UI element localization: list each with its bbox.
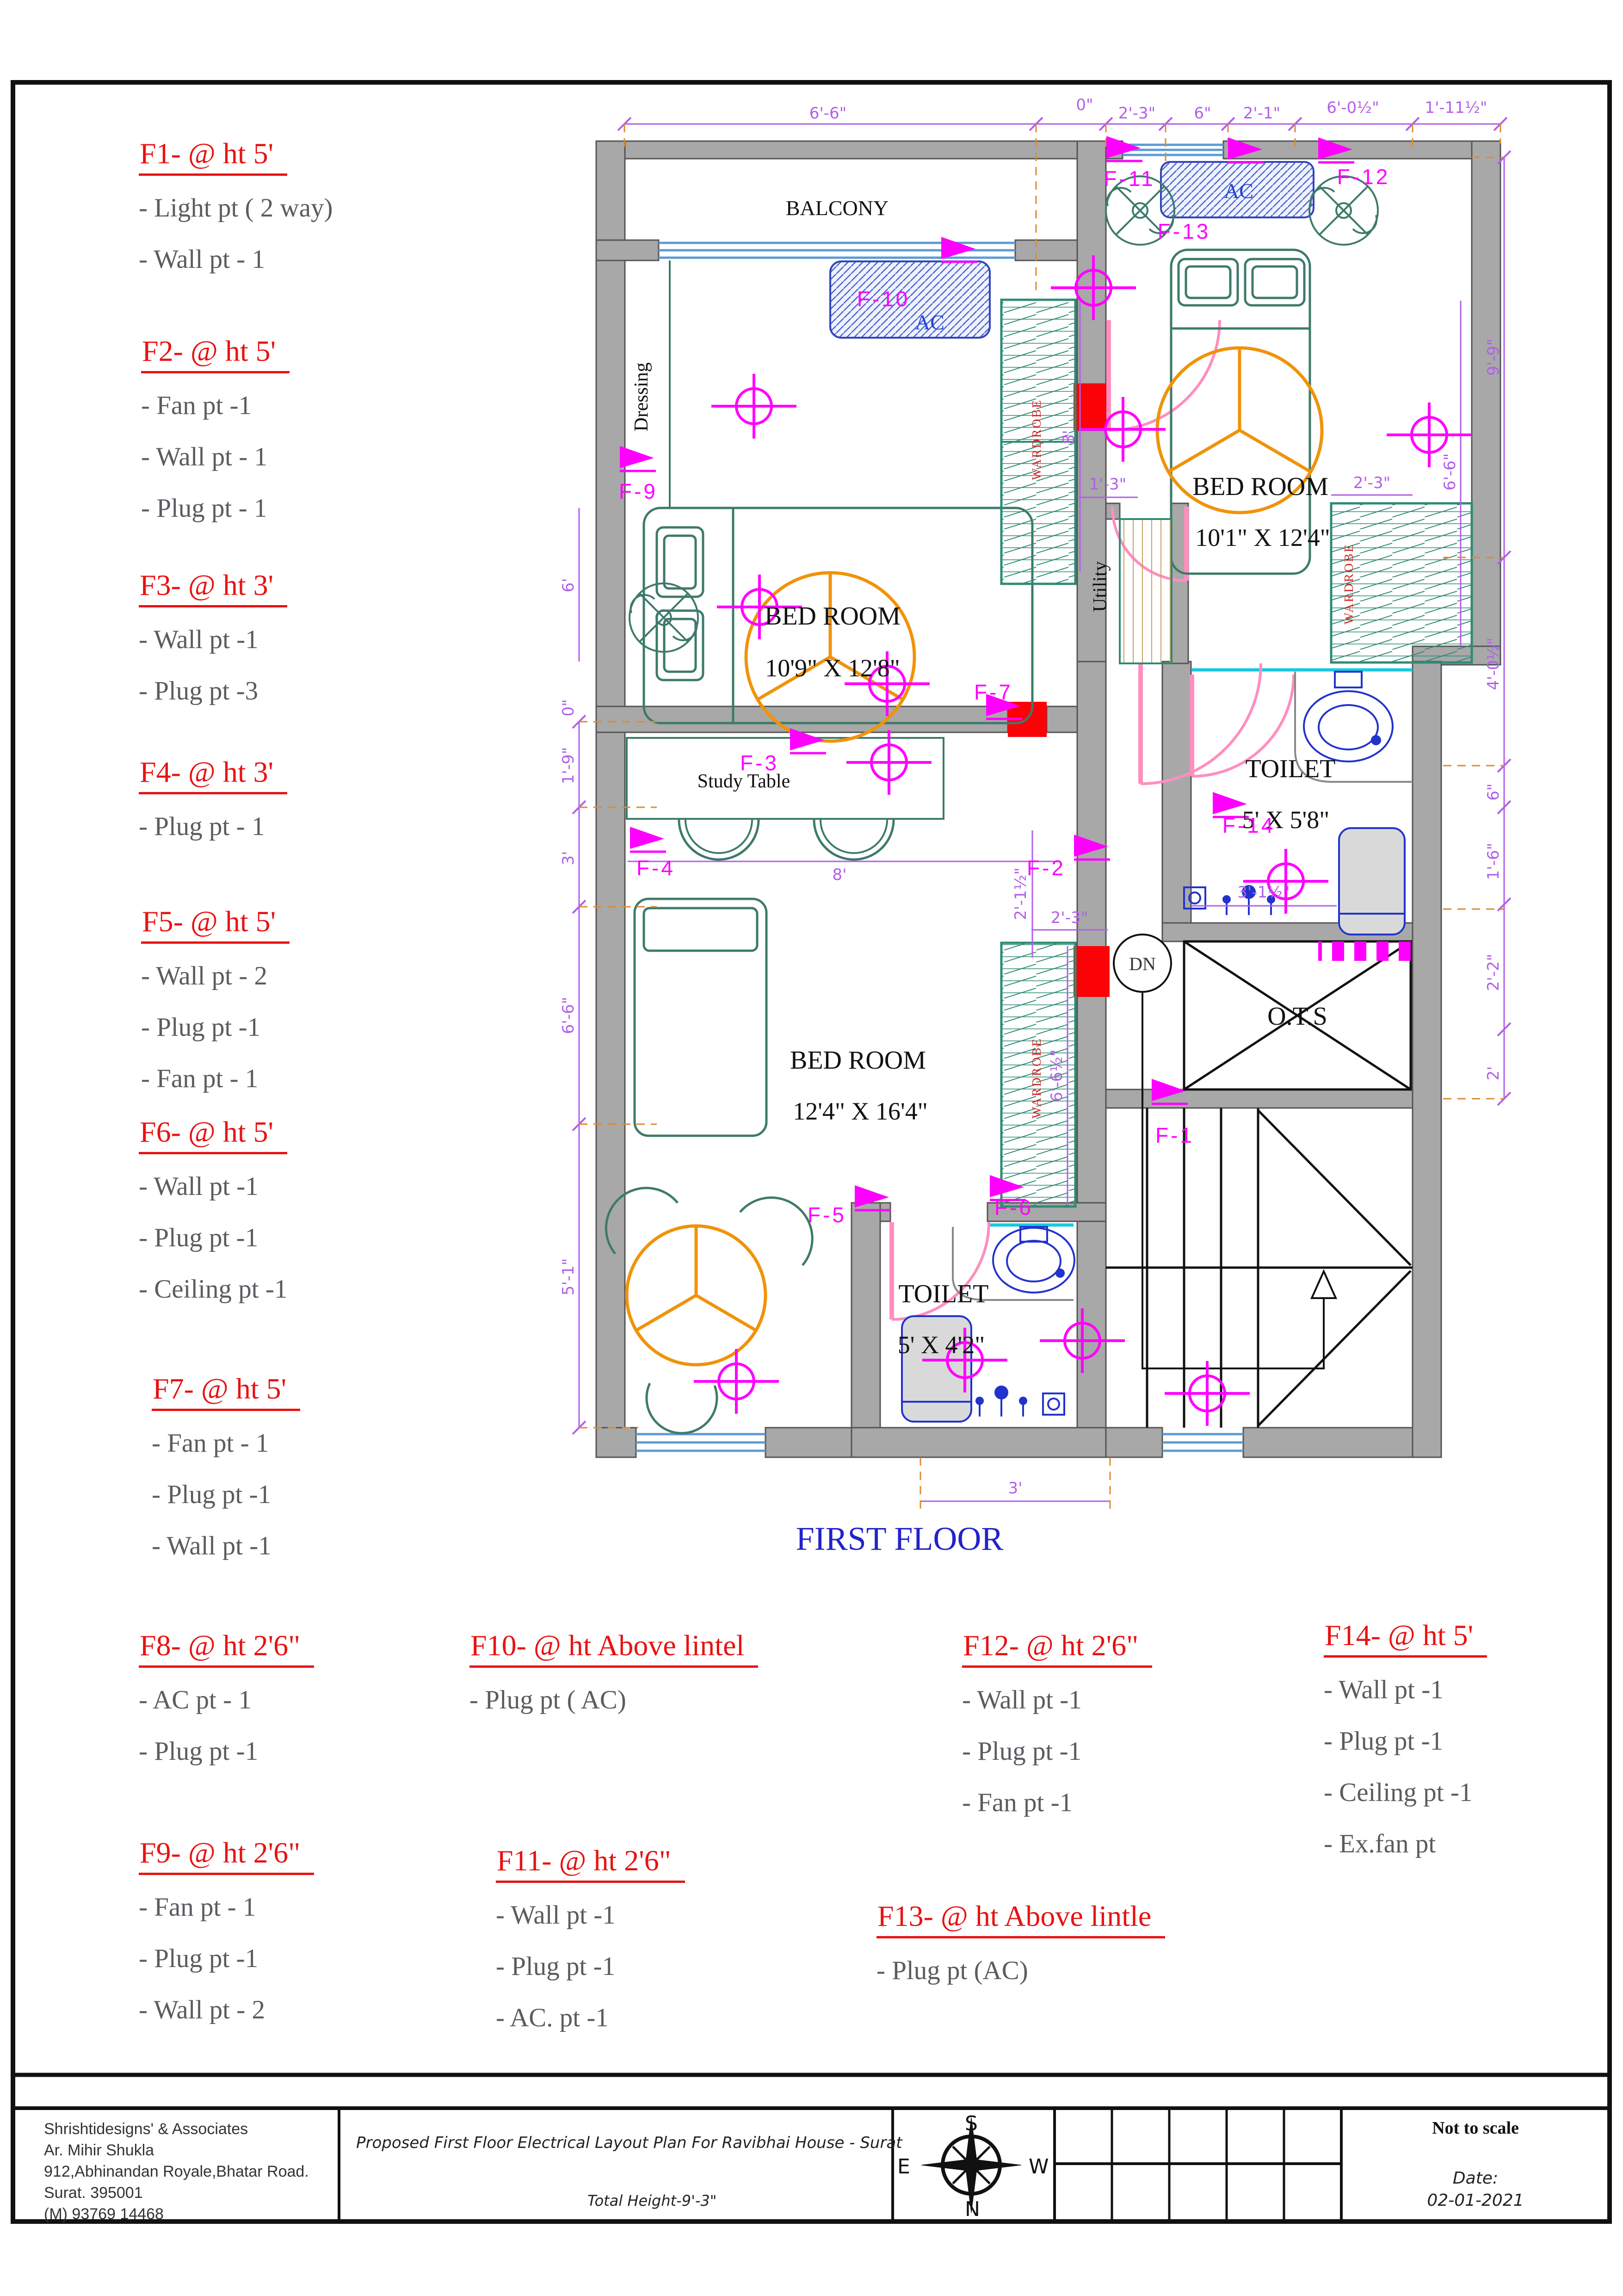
legend-F3-item-1: - Plug pt -3 [139, 665, 287, 717]
fixture-f13: F-13 [1158, 219, 1211, 243]
legend-F4: F4- @ ht 3'- Plug pt - 1 [139, 755, 287, 852]
legend-F10-item-0: - Plug pt ( AC) [469, 1674, 758, 1726]
compass-s: S [965, 2112, 978, 2135]
legend-F3-title: F3- @ ht 3' [139, 568, 287, 607]
switch-flag-icon [630, 827, 666, 852]
legend-F13-item-0: - Plug pt (AC) [876, 1945, 1165, 1996]
dim-left-2: 1'-9" [559, 747, 578, 785]
sheet: { "legend": [ {"id":"F1","title":"F1- @ … [0, 0, 1623, 2296]
ceiling-point-icon [846, 730, 932, 795]
legend-F14: F14- @ ht 5'- Wall pt -1- Plug pt -1- Ce… [1324, 1618, 1487, 1870]
room-size-bed1: 10'9" X 12'8" [765, 654, 900, 682]
room-size-bed3: 12'4" X 16'4" [793, 1097, 928, 1125]
legend-F9-item-1: - Plug pt -1 [139, 1933, 314, 1984]
legend-F14-item-1: - Plug pt -1 [1324, 1715, 1487, 1767]
scale-note: Not to scale [1341, 2118, 1610, 2138]
label-ac-1: AC [915, 310, 944, 334]
legend-F5-item-2: - Fan pt - 1 [141, 1053, 290, 1104]
fixture-f6: F-6 [994, 1195, 1033, 1219]
dim-top-4: 2'-1" [1243, 104, 1281, 123]
dim-ward3: 2'-3" [1051, 909, 1088, 927]
dim-top-5: 6'-0½" [1327, 99, 1379, 117]
legend-F4-item-0: - Plug pt - 1 [139, 801, 287, 852]
compass-rose-icon: S E W N [897, 2112, 1049, 2221]
legend-F12: F12- @ ht 2'6"- Wall pt -1- Plug pt -1- … [962, 1628, 1152, 1828]
dim-bed3-h: 6'-6½" [1048, 1049, 1066, 1102]
company-address-2: Surat. 395001 [44, 2183, 309, 2204]
compass-n: N [965, 2197, 980, 2221]
legend-F5-item-1: - Plug pt -1 [141, 1002, 290, 1053]
legend-F7-item-1: - Plug pt -1 [152, 1469, 300, 1520]
legend-F9-item-2: - Wall pt - 2 [139, 1984, 314, 2036]
room-label-ots: O.T.S [1267, 1002, 1327, 1031]
fixture-f5: F-5 [808, 1203, 846, 1227]
dim-right-4: 2'-2" [1484, 954, 1503, 991]
label-ac-2: AC [1224, 179, 1253, 203]
legend-F6-item-1: - Plug pt -1 [139, 1212, 287, 1263]
legend-F1-title: F1- @ ht 5' [139, 136, 287, 176]
legend-F9-title: F9- @ ht 2'6" [139, 1836, 314, 1875]
project-title: Proposed First Floor Electrical Layout P… [356, 2134, 888, 2152]
fixture-f4: F-4 [636, 856, 675, 880]
dim-right-2: 6" [1484, 783, 1503, 800]
dim-top-0: 6'-6" [809, 104, 847, 123]
dim-left-1: 0" [559, 699, 578, 716]
total-height-note: Total Height-9'-3" [587, 2192, 717, 2209]
stairs [1106, 934, 1413, 1428]
legend-F10: F10- @ ht Above lintel- Plug pt ( AC) [469, 1628, 758, 1726]
legend-F11-title: F11- @ ht 2'6" [496, 1844, 685, 1883]
legend-F12-item-0: - Wall pt -1 [962, 1674, 1152, 1726]
legend-F2-item-0: - Fan pt -1 [141, 380, 290, 431]
legend-F14-item-3: - Ex.fan pt [1324, 1818, 1487, 1869]
date-label: Date: [1341, 2169, 1610, 2188]
legend-F11: F11- @ ht 2'6"- Wall pt -1- Plug pt -1- … [496, 1844, 685, 2043]
dim-left-5: 5'-1" [559, 1258, 578, 1296]
ceiling-point-icon [1165, 1361, 1250, 1426]
room-label-bed2: BED ROOM [1192, 472, 1328, 501]
compass-w: W [1029, 2155, 1049, 2178]
legend-F5: F5- @ ht 5'- Wall pt - 2- Plug pt -1- Fa… [141, 904, 290, 1104]
dim-utility: 1'-3" [1089, 475, 1127, 494]
legend-F12-item-1: - Plug pt -1 [962, 1726, 1152, 1777]
fixture-f1: F-1 [1155, 1123, 1194, 1147]
legend-F1-item-0: - Light pt ( 2 way) [139, 182, 333, 234]
fixture-f14: F-14 [1222, 813, 1276, 837]
dim-ward2: 2'-3" [1353, 474, 1391, 492]
room-size-toilet2: 5' X 4'2" [898, 1331, 985, 1359]
dim-right-3: 1'-6" [1484, 843, 1503, 880]
company-address-1: 912,Abhinandan Royale,Bhatar Road. [44, 2161, 309, 2183]
room-label-bed3: BED ROOM [790, 1046, 926, 1075]
label-dn: DN [1129, 953, 1156, 974]
dim-toilet2-w: 3' [1008, 1479, 1023, 1498]
dim-left-0: 6' [559, 578, 578, 593]
legend-F9: F9- @ ht 2'6"- Fan pt - 1- Plug pt -1- W… [139, 1836, 314, 2036]
fixture-f3: F-3 [740, 751, 779, 775]
legend-F10-title: F10- @ ht Above lintel [469, 1628, 758, 1668]
legend-F6: F6- @ ht 5'- Wall pt -1- Plug pt -1- Cei… [139, 1115, 287, 1315]
label-wardrobe-2: WARDROBE [1342, 543, 1356, 625]
legend-F9-item-0: - Fan pt - 1 [139, 1881, 314, 1933]
legend-F14-item-2: - Ceiling pt -1 [1324, 1767, 1487, 1818]
legend-F1-item-1: - Wall pt - 1 [139, 234, 333, 285]
legend-F6-item-2: - Ceiling pt -1 [139, 1263, 287, 1315]
legend-F4-title: F4- @ ht 3' [139, 755, 287, 794]
fixture-f11: F-11 [1104, 167, 1155, 191]
room-label-balcony: BALCONY [786, 196, 889, 220]
date-value: 02-01-2021 [1341, 2191, 1610, 2210]
label-utility: Utility [1090, 561, 1111, 612]
dim-top-2: 2'-3" [1118, 104, 1156, 123]
dim-bed2-h: 6'-6" [1441, 453, 1459, 491]
legend-F13-title: F13- @ ht Above lintle [876, 1899, 1165, 1938]
room-label-toilet2: TOILET [899, 1280, 989, 1308]
fixture-f12: F-12 [1337, 165, 1390, 189]
dim-bed1-h: 8' [1060, 430, 1078, 445]
legend-F12-title: F12- @ ht 2'6" [962, 1628, 1152, 1668]
legend-F1: F1- @ ht 5'- Light pt ( 2 way)- Wall pt … [139, 136, 333, 285]
legend-F13: F13- @ ht Above lintle- Plug pt (AC) [876, 1899, 1165, 1996]
floor-title: FIRST FLOOR [796, 1520, 1004, 1557]
legend-F2-item-2: - Plug pt - 1 [141, 483, 290, 534]
dim-top-3: 6" [1194, 104, 1211, 123]
compass-e: E [897, 2155, 910, 2178]
company-phone: (M) 93769 14468 [44, 2204, 309, 2225]
fixture-f2: F-2 [1027, 856, 1066, 880]
ceiling-point-icon [711, 374, 796, 439]
legend-F7-title: F7- @ ht 5' [152, 1372, 300, 1411]
legend-F6-item-0: - Wall pt -1 [139, 1161, 287, 1212]
dim-top-6: 1'-11½" [1425, 99, 1487, 117]
fixture-f10: F-10 [857, 287, 910, 311]
ceiling-point-icon [694, 1349, 779, 1414]
legend-F2-item-1: - Wall pt - 1 [141, 431, 290, 483]
dim-top-1: 0" [1076, 96, 1093, 114]
dim-right-5: 2' [1484, 1066, 1503, 1081]
company-name: Shrishtidesigns' & Associates [44, 2119, 309, 2140]
legend-F7: F7- @ ht 5'- Fan pt - 1- Plug pt -1- Wal… [152, 1372, 300, 1572]
label-wardrobe-3: WARDROBE [1030, 1037, 1043, 1119]
legend-F11-item-1: - Plug pt -1 [496, 1941, 685, 1992]
legend-F6-title: F6- @ ht 5' [139, 1115, 287, 1154]
legend-F2-title: F2- @ ht 5' [141, 334, 290, 373]
fixture-f7: F-7 [974, 680, 1013, 704]
legend-F12-item-2: - Fan pt -1 [962, 1777, 1152, 1828]
label-wardrobe-1: WARDROBE [1030, 399, 1043, 480]
ceiling-point-icon [1243, 849, 1328, 914]
legend-F14-title: F14- @ ht 5' [1324, 1618, 1487, 1658]
legend-F2: F2- @ ht 5'- Fan pt -1- Wall pt - 1- Plu… [141, 334, 290, 534]
legend-F11-item-2: - AC. pt -1 [496, 1992, 685, 2043]
dim-right-1: 4'-0½" [1484, 637, 1503, 690]
dim-shower: 3'-1½" [1237, 883, 1290, 902]
room-label-bed1: BED ROOM [765, 602, 901, 631]
legend-F14-item-0: - Wall pt -1 [1324, 1664, 1487, 1715]
ceiling-point-icon [1040, 1308, 1125, 1373]
titleblock-company: Shrishtidesigns' & Associates Ar. Mihir … [44, 2119, 309, 2225]
architect-name: Ar. Mihir Shukla [44, 2140, 309, 2161]
legend-F7-item-0: - Fan pt - 1 [152, 1417, 300, 1469]
legend-F8: F8- @ ht 2'6"- AC pt - 1- Plug pt -1 [139, 1628, 314, 1777]
legend-F7-item-2: - Wall pt -1 [152, 1520, 300, 1572]
utility-closet [1120, 519, 1172, 663]
dim-left-4: 6'-6" [559, 997, 578, 1034]
legend-F8-title: F8- @ ht 2'6" [139, 1628, 314, 1668]
legend-F11-item-0: - Wall pt -1 [496, 1889, 685, 1941]
fixture-f9: F-9 [619, 479, 658, 503]
dim-right-0: 9'-9" [1484, 339, 1503, 376]
dim-lobby: 2'-1½" [1012, 867, 1030, 920]
furniture [606, 250, 1310, 1433]
dim-study-w: 8' [833, 866, 847, 884]
legend-F3: F3- @ ht 3'- Wall pt -1- Plug pt -3 [139, 568, 287, 717]
legend-F5-title: F5- @ ht 5' [141, 904, 290, 944]
legend-F8-item-1: - Plug pt -1 [139, 1726, 314, 1777]
room-label-toilet1: TOILET [1246, 755, 1336, 783]
legend-F3-item-0: - Wall pt -1 [139, 614, 287, 665]
label-dressing: Dressing [631, 362, 652, 431]
legend-F8-item-0: - AC pt - 1 [139, 1674, 314, 1726]
dim-left-3: 3' [559, 851, 578, 866]
legend-F5-item-0: - Wall pt - 2 [141, 950, 290, 1002]
room-size-bed2: 10'1" X 12'4" [1195, 524, 1330, 551]
